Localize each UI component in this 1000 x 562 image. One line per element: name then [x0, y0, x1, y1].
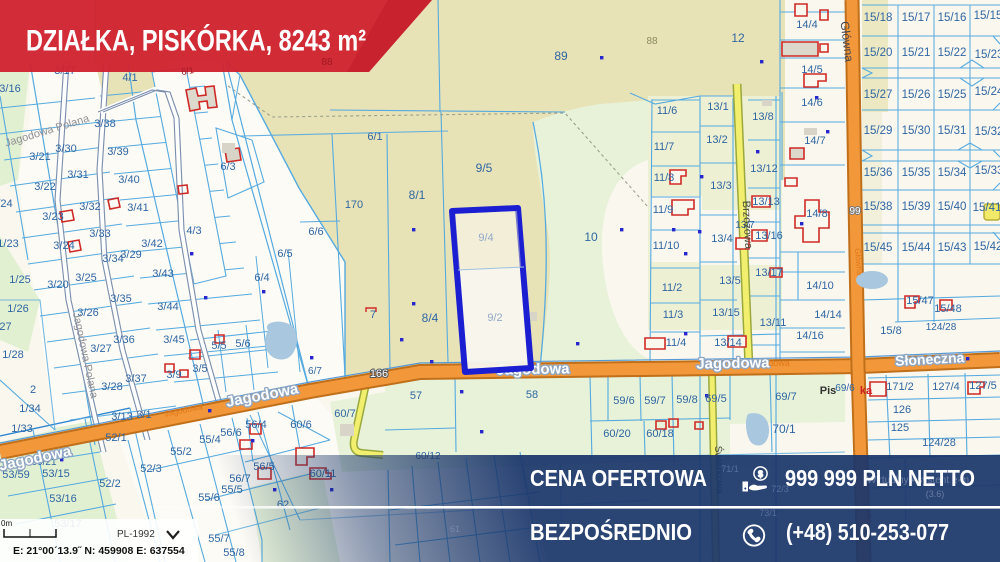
svg-text:13/2: 13/2	[706, 134, 727, 146]
svg-text:3/9: 3/9	[166, 369, 181, 381]
svg-text:ka: ka	[860, 385, 873, 397]
svg-text:124/28: 124/28	[926, 322, 957, 333]
svg-text:4/3: 4/3	[186, 225, 201, 237]
svg-text:15/27: 15/27	[864, 89, 893, 101]
svg-text:14/6: 14/6	[801, 97, 822, 109]
svg-text:14/14: 14/14	[814, 309, 842, 321]
svg-text:15/23: 15/23	[975, 49, 1000, 61]
svg-text:15/18: 15/18	[864, 12, 893, 24]
svg-text:61: 61	[450, 524, 460, 534]
svg-text:71/1: 71/1	[721, 464, 739, 474]
svg-text:60/6: 60/6	[290, 419, 311, 431]
svg-text:13/5: 13/5	[719, 275, 740, 287]
svg-text:13/3: 13/3	[710, 180, 731, 192]
svg-text:15/43: 15/43	[938, 242, 967, 254]
svg-text:3/33: 3/33	[89, 228, 110, 240]
svg-text:15/35: 15/35	[902, 167, 931, 179]
svg-text:15/44: 15/44	[902, 242, 931, 254]
svg-text:1/28: 1/28	[2, 349, 23, 361]
svg-text:$: $	[758, 469, 763, 479]
svg-text:1/25: 1/25	[9, 274, 30, 286]
svg-text:/24: /24	[0, 198, 13, 210]
svg-text:14/4: 14/4	[796, 19, 817, 31]
svg-text:13/1: 13/1	[707, 101, 728, 113]
svg-text:5/5: 5/5	[211, 340, 226, 352]
svg-text:69/7: 69/7	[775, 391, 796, 403]
svg-text:3/23: 3/23	[42, 211, 63, 223]
svg-text:15/17: 15/17	[902, 12, 931, 24]
svg-text:3/37: 3/37	[125, 373, 146, 385]
svg-text:15/38: 15/38	[864, 201, 893, 213]
svg-text:1/33: 1/33	[11, 423, 32, 435]
svg-text:88: 88	[321, 57, 333, 68]
svg-text:12: 12	[731, 31, 745, 45]
svg-text:56/4: 56/4	[245, 419, 266, 431]
svg-text:3/40: 3/40	[118, 174, 139, 186]
svg-text:11/9: 11/9	[653, 204, 674, 216]
svg-text:13/16: 13/16	[755, 230, 783, 242]
svg-text:15/34: 15/34	[938, 167, 967, 179]
svg-text:3/16: 3/16	[0, 83, 21, 95]
svg-text:166: 166	[370, 368, 388, 380]
svg-text:13/17: 13/17	[755, 267, 783, 279]
svg-text:15/40: 15/40	[938, 201, 967, 213]
svg-text:15/25: 15/25	[938, 89, 967, 101]
svg-text:3/45: 3/45	[163, 334, 184, 346]
svg-text:6/1: 6/1	[367, 131, 382, 143]
svg-text:Pis: Pis	[820, 385, 837, 397]
svg-text:5/6: 5/6	[235, 338, 250, 350]
svg-text:6/1: 6/1	[180, 65, 194, 77]
svg-text:15/26: 15/26	[902, 89, 931, 101]
svg-text:15/32: 15/32	[975, 126, 1000, 138]
svg-text:3/24: 3/24	[53, 240, 74, 252]
svg-text:69/6: 69/6	[835, 383, 855, 394]
svg-text:3/22: 3/22	[34, 181, 55, 193]
svg-text:13/12: 13/12	[750, 163, 778, 175]
svg-text:15/8: 15/8	[880, 325, 901, 337]
svg-text:3/28: 3/28	[101, 381, 122, 393]
svg-text:dowa: dowa	[768, 358, 790, 368]
svg-text:3/41: 3/41	[127, 202, 148, 214]
svg-text:8/4: 8/4	[422, 311, 439, 325]
svg-text:3/36: 3/36	[113, 334, 134, 346]
svg-text:3/27: 3/27	[90, 343, 111, 355]
svg-text:13/11: 13/11	[760, 317, 787, 329]
svg-text:88: 88	[646, 36, 658, 47]
svg-text:8/1: 8/1	[409, 188, 426, 202]
svg-text:15/30: 15/30	[902, 125, 931, 137]
svg-text:14/5: 14/5	[801, 64, 822, 76]
svg-text:9/4: 9/4	[478, 232, 493, 244]
svg-text:DZIAŁKA, PISKÓRKA, 8243 m²: DZIAŁKA, PISKÓRKA, 8243 m²	[26, 24, 366, 58]
svg-text:11/8: 11/8	[654, 172, 675, 184]
svg-text:11/4: 11/4	[666, 337, 687, 349]
svg-text:13/14: 13/14	[714, 337, 742, 349]
svg-text:60/18: 60/18	[646, 428, 674, 440]
svg-text:70/1: 70/1	[772, 422, 796, 436]
svg-text:57: 57	[410, 390, 422, 402]
svg-text:55/4: 55/4	[199, 434, 220, 446]
svg-text:6/5: 6/5	[277, 248, 292, 260]
svg-text:3/5: 3/5	[192, 363, 207, 375]
svg-text:11/6: 11/6	[657, 105, 678, 117]
svg-text:1/34: 1/34	[19, 403, 40, 415]
svg-text:6/7: 6/7	[308, 366, 322, 377]
svg-text:2: 2	[30, 384, 36, 396]
svg-text:127/4: 127/4	[932, 381, 960, 393]
svg-text:15/24: 15/24	[975, 86, 1000, 98]
svg-text:3/30: 3/30	[55, 143, 76, 155]
svg-text:11/3: 11/3	[663, 309, 684, 321]
svg-text:3/25: 3/25	[75, 272, 96, 284]
svg-text:Jagodowa: Jagodowa	[696, 354, 770, 372]
svg-text:3/42: 3/42	[141, 238, 162, 250]
svg-text:4/1: 4/1	[122, 72, 137, 84]
svg-text:56/6: 56/6	[220, 427, 241, 439]
svg-text:13/4: 13/4	[711, 233, 732, 245]
svg-text:14/8: 14/8	[806, 208, 827, 220]
svg-text:52/1: 52/1	[105, 432, 126, 444]
svg-text:3/21: 3/21	[29, 151, 50, 163]
svg-text:13/13: 13/13	[752, 196, 780, 208]
svg-text:BEZPOŚREDNIO: BEZPOŚREDNIO	[530, 518, 692, 545]
svg-text:15/21: 15/21	[902, 47, 931, 59]
svg-text:1/26: 1/26	[7, 303, 28, 315]
svg-text:/27: /27	[0, 321, 12, 333]
svg-text:3/20: 3/20	[47, 279, 68, 291]
svg-text:171/2: 171/2	[886, 381, 914, 393]
svg-text:9/5: 9/5	[476, 161, 493, 175]
svg-text:125: 125	[891, 422, 909, 434]
svg-text:3/44: 3/44	[157, 301, 178, 313]
svg-text:170: 170	[345, 199, 363, 211]
svg-text:15/31: 15/31	[938, 125, 967, 137]
svg-text:3/35: 3/35	[110, 293, 131, 305]
svg-text:15/15: 15/15	[974, 10, 1000, 22]
svg-text:6/4: 6/4	[254, 272, 269, 284]
svg-text:15/16: 15/16	[938, 12, 967, 24]
svg-text:(+48) 510-253-077: (+48) 510-253-077	[786, 519, 949, 545]
svg-text:89: 89	[554, 49, 568, 63]
svg-text:59/6: 59/6	[613, 395, 634, 407]
svg-text:999 999 PLN NETTO: 999 999 PLN NETTO	[785, 465, 975, 491]
svg-text:14/16: 14/16	[796, 330, 824, 342]
svg-text:11/10: 11/10	[653, 240, 680, 252]
svg-text:10: 10	[584, 230, 598, 244]
svg-text:3/39: 3/39	[107, 146, 128, 158]
svg-text:11/7: 11/7	[654, 141, 675, 153]
svg-text:13/8: 13/8	[752, 111, 773, 123]
svg-text:3/13: 3/13	[111, 411, 132, 423]
svg-text:3/31: 3/31	[67, 169, 88, 181]
svg-text:14/7: 14/7	[804, 135, 825, 147]
svg-text:59/8: 59/8	[676, 394, 697, 406]
svg-text:3/34: 3/34	[102, 253, 123, 265]
svg-text:14/10: 14/10	[806, 280, 834, 292]
svg-text:69/5: 69/5	[705, 393, 726, 405]
svg-text:15/36: 15/36	[864, 167, 893, 179]
svg-text:124/28: 124/28	[922, 437, 956, 449]
svg-text:15/33: 15/33	[975, 165, 1000, 177]
svg-text:7: 7	[370, 309, 376, 321]
svg-text:15/20: 15/20	[864, 47, 893, 59]
svg-text:126: 126	[893, 404, 911, 416]
svg-text:15/42: 15/42	[974, 241, 1000, 253]
svg-text:3/38: 3/38	[94, 118, 115, 130]
svg-text:73/1: 73/1	[759, 508, 777, 518]
svg-text:60/7: 60/7	[334, 408, 355, 420]
svg-text:3/1: 3/1	[136, 409, 151, 421]
svg-text:1/23: 1/23	[0, 238, 19, 250]
svg-text:15/41: 15/41	[973, 202, 1000, 214]
svg-text:15/22: 15/22	[938, 47, 967, 59]
svg-text:CENA OFERTOWA: CENA OFERTOWA	[530, 465, 707, 491]
svg-text:13/15: 13/15	[712, 307, 740, 319]
svg-text:59/7: 59/7	[644, 395, 665, 407]
svg-text:3/43: 3/43	[152, 268, 173, 280]
svg-text:15/48: 15/48	[934, 303, 962, 315]
svg-text:Brzozowa: Brzozowa	[740, 200, 755, 250]
svg-text:15/39: 15/39	[902, 201, 931, 213]
svg-text:58: 58	[526, 389, 538, 401]
svg-text:99: 99	[849, 206, 861, 217]
svg-text:60/20: 60/20	[603, 428, 631, 440]
svg-text:127/5: 127/5	[969, 380, 997, 392]
svg-text:15/29: 15/29	[864, 125, 893, 137]
svg-text:11/2: 11/2	[662, 282, 683, 294]
svg-text:9/2: 9/2	[487, 312, 502, 324]
svg-text:15/47: 15/47	[906, 295, 934, 307]
svg-text:6/6: 6/6	[308, 226, 323, 238]
svg-text:15/45: 15/45	[864, 242, 893, 254]
svg-text:6/3: 6/3	[220, 161, 235, 173]
svg-text:3/32: 3/32	[79, 201, 100, 213]
